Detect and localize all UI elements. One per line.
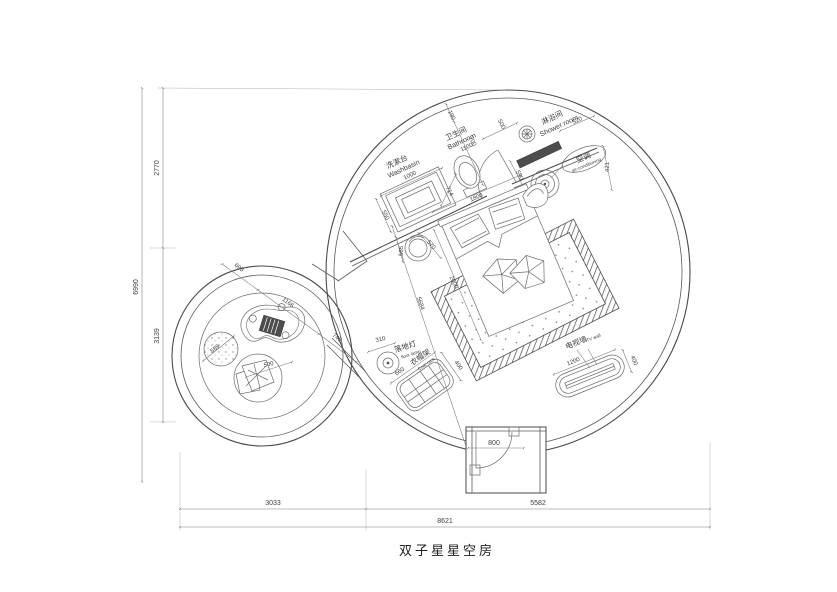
dim-stool-565: 565 [399, 245, 405, 256]
room-walls [172, 90, 690, 454]
svg-text:TV wall: TV wall [586, 333, 602, 343]
ac-label: 空调 air-conditioning [559, 140, 610, 178]
toilet [449, 152, 488, 198]
dim-tv-1200: 1200 [566, 357, 581, 368]
dim-190: 190 [446, 110, 456, 122]
floor-plan-page: 空调 air-conditioning 洗漱台 Washbasin 1000 卫… [0, 0, 837, 592]
lounge-chair [234, 354, 282, 402]
dim-chair-500: 500 [263, 361, 275, 369]
svg-text:电视墙: 电视墙 [564, 333, 589, 351]
dim-rack-660: 660 [394, 366, 406, 377]
dim-bed-1800: 1800 [469, 192, 484, 203]
floor-plan-canvas: 空调 air-conditioning 洗漱台 Washbasin 1000 卫… [0, 0, 837, 592]
dim-693: 693 [233, 263, 245, 274]
dim-6990: 6990 [133, 279, 140, 295]
dim-rack-400: 400 [453, 360, 464, 372]
dim-2770: 2770 [154, 160, 161, 176]
bathroom-door-leaf [498, 150, 516, 182]
dim-lamp-310: 310 [375, 336, 387, 345]
entrance-vestibule: 800 [466, 427, 546, 493]
dim-3033: 3033 [265, 500, 281, 507]
dim-5582: 5582 [530, 500, 546, 507]
drawing-title: 双子星星空房 [399, 543, 495, 558]
bedside-stool [405, 235, 431, 261]
corridor-upper-wall [312, 264, 339, 281]
dim-421: 421 [605, 161, 611, 172]
dim-tv-400: 400 [629, 355, 639, 367]
dim-8621: 8621 [437, 518, 453, 525]
dim-diag-5684: 5684 [415, 296, 425, 311]
dim-745: 745 [331, 333, 343, 344]
floor-lamp: 310 落地灯 floor lamp [368, 336, 422, 374]
table-tray [259, 315, 285, 337]
dim-3139: 3139 [154, 328, 161, 344]
dim-entry-800: 800 [488, 440, 500, 447]
shower-partition [517, 141, 562, 168]
kidney-table [236, 294, 310, 354]
washbasin-label: 洗漱台 Washbasin 1000 [382, 148, 425, 187]
table-knob [248, 314, 257, 323]
tv-wall: 1200 400 [548, 337, 640, 400]
shower-drain-icon [519, 126, 535, 142]
corridor-lower-wall [327, 338, 366, 378]
